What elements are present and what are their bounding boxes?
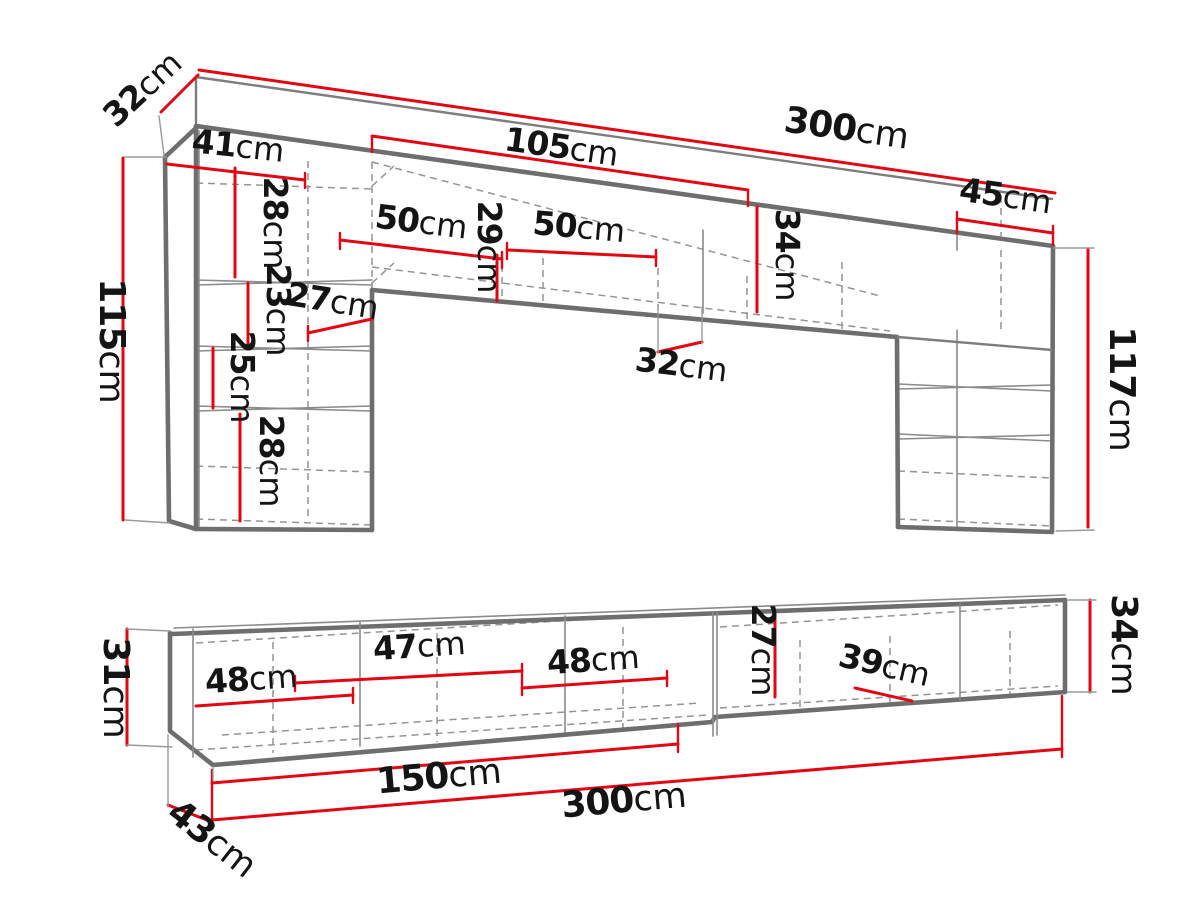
dim-shelf-28b-label: 28cm bbox=[252, 415, 291, 508]
dim-band-34-label: 34cm bbox=[768, 209, 807, 302]
wall-unit-view: 32cm 300cm 105cm 41cm 28cm 50cm 29cm 50c… bbox=[91, 43, 1142, 532]
dim-right-height-label: 117cm bbox=[1101, 326, 1142, 452]
dim-total-width-300-label: 300cm bbox=[560, 775, 689, 827]
dim-mid-depth-label: 32cm bbox=[633, 340, 730, 390]
dim-comp-48a-label: 48cm bbox=[204, 656, 299, 701]
dim-inner-29-label: 29cm bbox=[470, 201, 509, 294]
dim-half-width-150-label: 150cm bbox=[375, 751, 504, 803]
furniture-dimension-diagram: 32cm 300cm 105cm 41cm 28cm 50cm 29cm 50c… bbox=[0, 0, 1200, 900]
dim-shelf-depth-27-label: 27cm bbox=[284, 274, 382, 327]
dim-left-cab-width-label: 41cm bbox=[190, 121, 286, 169]
dim-stand-inner-27-label: 27cm bbox=[744, 604, 783, 697]
dim-shelf-25-label: 25cm bbox=[223, 331, 262, 424]
dim-cab50-right-label: 50cm bbox=[531, 203, 627, 250]
tv-stand-dimension-labels: 31cm 48cm 47cm 48cm 27cm 39cm 34cm 150cm… bbox=[95, 594, 1144, 886]
dim-cab50-left-label: 50cm bbox=[373, 197, 470, 247]
dim-depth-top-label: 32cm bbox=[95, 43, 189, 135]
dim-right-cab-width-label: 45cm bbox=[957, 170, 1054, 222]
dim-left-height-label: 115cm bbox=[91, 278, 132, 404]
tv-stand-view: 31cm 48cm 47cm 48cm 27cm 39cm 34cm 150cm… bbox=[95, 594, 1144, 886]
dim-comp-39-label: 39cm bbox=[835, 635, 934, 694]
dim-total-width-label: 300cm bbox=[782, 100, 912, 158]
wall-unit-shelves bbox=[196, 218, 1052, 528]
diagram-canvas: 32cm 300cm 105cm 41cm 28cm 50cm 29cm 50c… bbox=[0, 0, 1200, 900]
dim-shelf-28a-label: 28cm bbox=[256, 177, 295, 270]
dim-comp-48b-label: 48cm bbox=[546, 637, 641, 682]
dim-stand-right-height-label: 34cm bbox=[1103, 594, 1144, 695]
dim-stand-left-height-label: 31cm bbox=[95, 637, 136, 738]
dim-comp-47-label: 47cm bbox=[372, 623, 467, 668]
